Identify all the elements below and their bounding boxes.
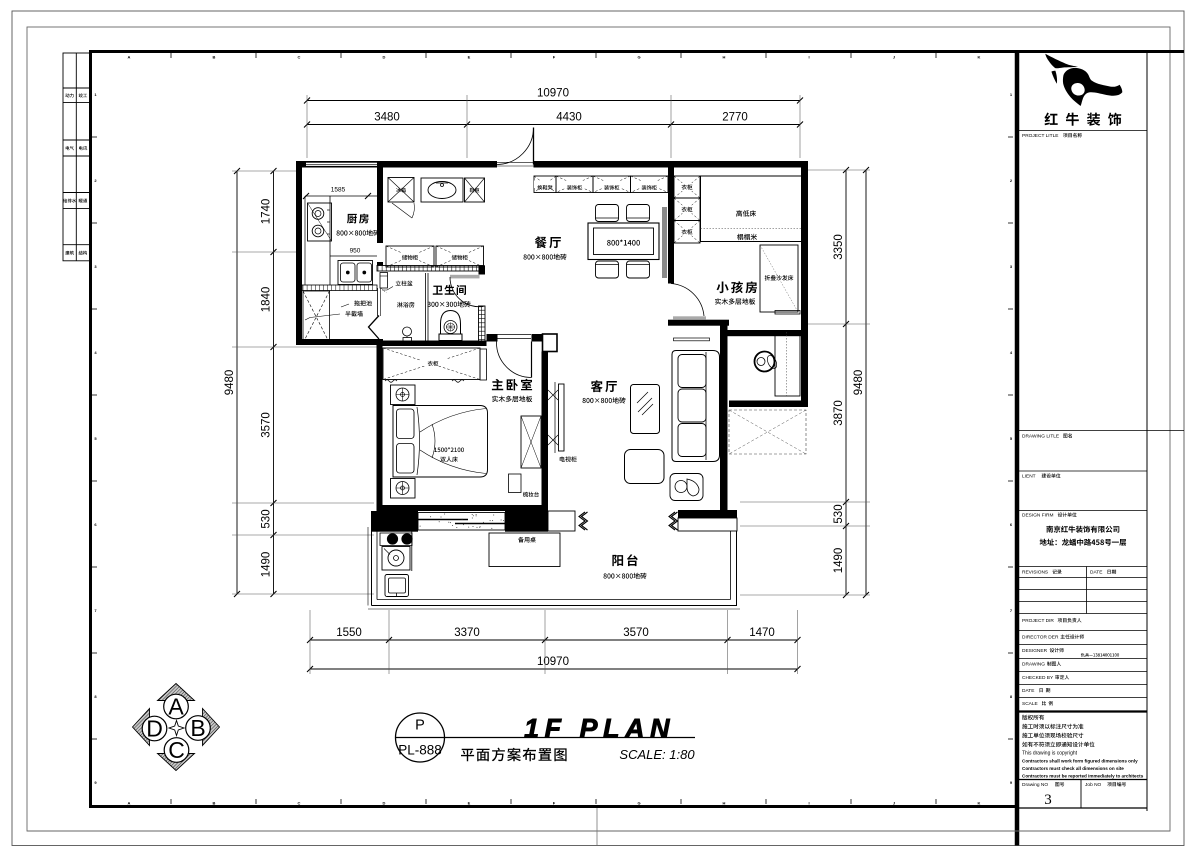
svg-text:3: 3 [1044, 792, 1052, 808]
svg-text:A: A [128, 55, 131, 60]
svg-text:C: C [168, 737, 185, 763]
svg-text:1840: 1840 [261, 287, 273, 313]
svg-text:I: I [808, 801, 809, 806]
svg-text:Contractors shall work form fi: Contractors shall work form figured dime… [1022, 759, 1138, 764]
svg-text:A: A [128, 801, 131, 806]
svg-text:1740: 1740 [261, 199, 273, 225]
svg-text:3350: 3350 [833, 234, 845, 260]
svg-text:This drawing is copyright: This drawing is copyright [1022, 751, 1078, 757]
svg-text:1470: 1470 [749, 627, 775, 639]
svg-text:B: B [213, 801, 216, 806]
svg-text:A: A [168, 694, 184, 720]
svg-text:G: G [637, 801, 640, 806]
svg-text:B: B [213, 55, 216, 60]
svg-text:SCALE: SCALE [1022, 701, 1038, 707]
svg-text:1490: 1490 [833, 548, 845, 574]
svg-text:J: J [893, 55, 895, 60]
svg-text:3370: 3370 [454, 627, 480, 639]
svg-text:4430: 4430 [556, 112, 582, 124]
svg-text:D: D [383, 55, 386, 60]
svg-text:D: D [383, 801, 386, 806]
svg-text:H: H [723, 55, 726, 60]
svg-text:3870: 3870 [833, 400, 845, 426]
svg-text:P: P [415, 718, 425, 734]
svg-text:DIRECTOR DER: DIRECTOR DER [1022, 635, 1059, 641]
svg-text:CHECKED BY: CHECKED BY [1022, 675, 1054, 681]
svg-text:PL-888: PL-888 [398, 743, 442, 758]
svg-text:530: 530 [261, 509, 273, 528]
svg-text:D: D [146, 716, 163, 742]
svg-text:1585: 1585 [331, 187, 346, 194]
svg-text:E: E [468, 55, 471, 60]
svg-text:PROJECT DIR: PROJECT DIR [1022, 618, 1054, 624]
svg-text:DRAWING: DRAWING [1022, 662, 1045, 668]
svg-text:H: H [723, 801, 726, 806]
svg-text:10970: 10970 [537, 656, 569, 668]
svg-text:Drawing NO: Drawing NO [1022, 782, 1048, 788]
svg-text:950: 950 [350, 248, 361, 255]
svg-text:9480: 9480 [224, 370, 236, 396]
svg-text:3570: 3570 [623, 627, 649, 639]
svg-text:DESIGNER: DESIGNER [1022, 648, 1048, 654]
svg-text:3480: 3480 [374, 112, 400, 124]
svg-text:3570: 3570 [261, 412, 273, 438]
svg-text:9480: 9480 [853, 370, 865, 396]
svg-text:1550: 1550 [336, 627, 362, 639]
svg-text:10970: 10970 [537, 88, 569, 100]
svg-text:Contractors must be reported i: Contractors must be reported immediately… [1022, 773, 1144, 778]
svg-text:J: J [893, 801, 895, 806]
svg-text:Contractors must check all dim: Contractors must check all dimensions on… [1022, 766, 1124, 771]
svg-text:PROJECT LITLE: PROJECT LITLE [1022, 133, 1058, 139]
svg-text:B: B [190, 715, 205, 741]
svg-text:1F PLAN: 1F PLAN [524, 714, 675, 744]
svg-text:G: G [637, 55, 640, 60]
svg-text:2770: 2770 [722, 112, 748, 124]
svg-text:I: I [808, 55, 809, 60]
svg-text:DRAWING LITLE: DRAWING LITLE [1022, 434, 1059, 440]
svg-text:K: K [978, 801, 981, 806]
svg-text:1490: 1490 [261, 552, 273, 578]
svg-text:530: 530 [833, 504, 845, 523]
svg-text:DATE: DATE [1090, 570, 1102, 576]
svg-text:C: C [298, 55, 301, 60]
svg-text:SCALE: 1:80: SCALE: 1:80 [619, 747, 695, 762]
svg-text:E: E [468, 801, 471, 806]
svg-text:REVISIONS: REVISIONS [1022, 570, 1048, 576]
svg-text:K: K [978, 55, 981, 60]
svg-text:C: C [298, 801, 301, 806]
svg-text:Job NO: Job NO [1085, 782, 1102, 788]
svg-text:LIENT: LIENT [1022, 474, 1036, 480]
svg-text:DATE: DATE [1022, 688, 1034, 694]
svg-text:DESIGN FIRM: DESIGN FIRM [1022, 513, 1053, 519]
